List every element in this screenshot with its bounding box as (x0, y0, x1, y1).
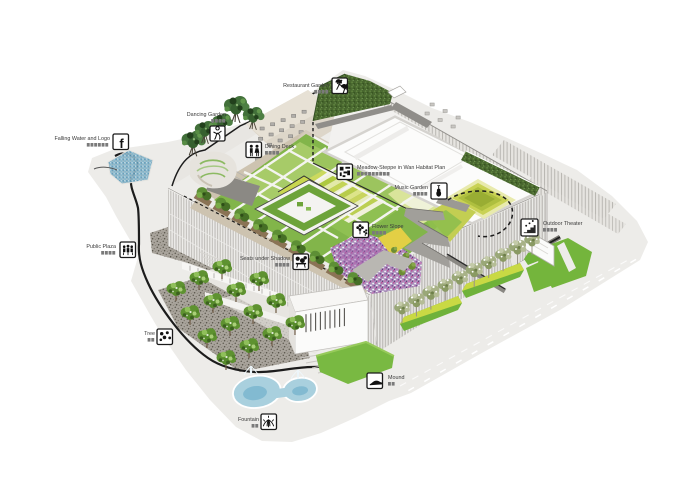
svg-text:Falling Water and Logo: Falling Water and Logo (54, 136, 110, 142)
svg-text:Public Plaza: Public Plaza (86, 244, 116, 250)
svg-text:Flower Slope: Flower Slope (372, 224, 403, 230)
svg-text:Fountain: Fountain (238, 417, 259, 423)
svg-text:f: f (119, 136, 124, 151)
svg-text:Seats under Shadow: Seats under Shadow (240, 256, 290, 262)
svg-text:Outdoor Theater: Outdoor Theater (543, 221, 583, 227)
svg-text:Dining Deck: Dining Deck (265, 144, 294, 150)
svg-text:Restaurant Garden: Restaurant Garden (283, 83, 329, 89)
svg-text:Tree: Tree (144, 331, 155, 337)
svg-text:Meadow-Steppe in Wan Habitat P: Meadow-Steppe in Wan Habitat Plan (357, 165, 445, 171)
svg-text:Dancing Garden: Dancing Garden (187, 112, 226, 118)
svg-text:Music Garden: Music Garden (394, 185, 428, 191)
svg-text:Mound: Mound (388, 375, 404, 381)
